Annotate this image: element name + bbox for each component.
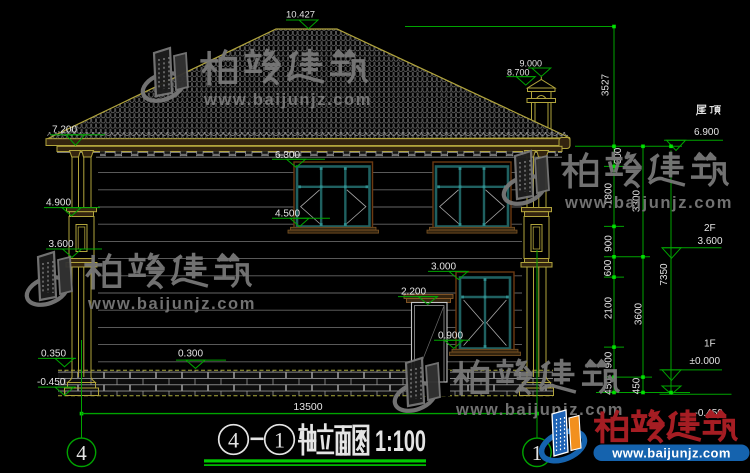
svg-text:4: 4 [228, 428, 239, 453]
svg-text:2F: 2F [704, 223, 716, 234]
svg-text:www.baijunjz.com: www.baijunjz.com [611, 445, 731, 460]
svg-text:-0.450: -0.450 [37, 377, 66, 388]
svg-text:3600: 3600 [634, 302, 645, 325]
svg-text:2100: 2100 [604, 296, 615, 319]
svg-text:3.600: 3.600 [698, 236, 723, 247]
svg-text:0.900: 0.900 [438, 330, 463, 341]
svg-text:7350: 7350 [659, 263, 670, 286]
svg-text:3527: 3527 [601, 73, 612, 96]
svg-text:1F: 1F [704, 339, 716, 350]
svg-text:7.200: 7.200 [52, 125, 77, 136]
svg-text:1: 1 [274, 428, 285, 453]
svg-text:0.300: 0.300 [178, 348, 203, 359]
svg-text:4: 4 [76, 441, 87, 465]
svg-text:4.500: 4.500 [275, 208, 300, 219]
svg-text:10.427: 10.427 [286, 10, 315, 21]
svg-text:4.900: 4.900 [46, 198, 71, 209]
svg-text:600: 600 [603, 259, 614, 276]
svg-text:13500: 13500 [293, 401, 322, 413]
svg-text:6.900: 6.900 [694, 127, 719, 138]
svg-text:450: 450 [632, 377, 643, 394]
svg-text:2.200: 2.200 [401, 287, 426, 298]
svg-text:3.600: 3.600 [49, 239, 74, 250]
svg-text:1:100: 1:100 [375, 425, 426, 458]
svg-text:±0.000: ±0.000 [690, 356, 721, 367]
svg-text:3.000: 3.000 [431, 261, 456, 272]
svg-text:900: 900 [604, 235, 615, 252]
